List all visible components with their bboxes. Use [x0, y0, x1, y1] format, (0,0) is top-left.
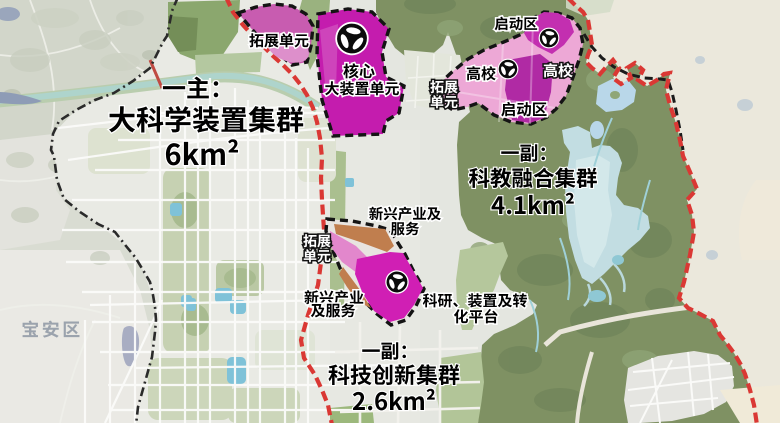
svg-text:6km²: 6km² [165, 132, 240, 174]
svg-text:宝安区: 宝安区 [21, 316, 83, 342]
svg-text:化平台: 化平台 [453, 306, 498, 327]
svg-text:2.6km²: 2.6km² [352, 382, 436, 417]
svg-text:单元: 单元 [430, 92, 458, 112]
svg-text:服务: 服务 [391, 218, 420, 239]
svg-text:拓展单元: 拓展单元 [249, 30, 309, 51]
svg-text:及服务: 及服务 [310, 300, 355, 321]
svg-text:4.1km²: 4.1km² [491, 186, 575, 221]
svg-text:启动区: 启动区 [494, 13, 538, 34]
svg-text:大装置单元: 大装置单元 [324, 78, 399, 99]
svg-text:启动区: 启动区 [501, 98, 548, 120]
svg-text:高校: 高校 [543, 60, 573, 81]
svg-text:高校: 高校 [466, 63, 496, 84]
svg-text:单元: 单元 [303, 246, 331, 266]
